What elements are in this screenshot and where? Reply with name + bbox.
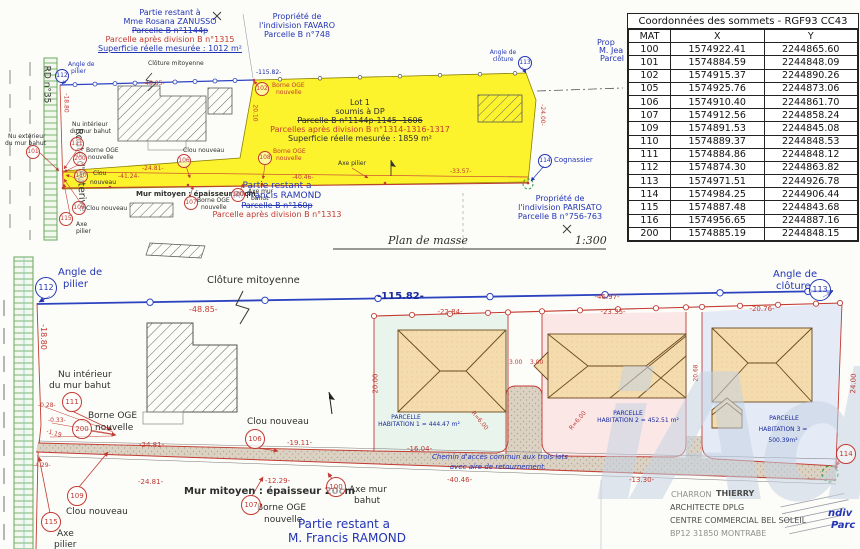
coord-cell: 110 xyxy=(629,135,671,148)
coord-cell: 1574912.56 xyxy=(671,109,765,122)
road-strip-bottom xyxy=(14,257,33,549)
table-row: 1061574910.402244861.70 xyxy=(629,95,858,108)
coord-cell: 109 xyxy=(629,122,671,135)
survey-plan-page: iAd Partie restant àMme Rosana ZANUSSOPa… xyxy=(0,0,860,549)
coord-cell: 2244848.15 xyxy=(764,227,858,240)
coord-cell: 116 xyxy=(629,214,671,227)
table-row: 1141574984.252244906.44 xyxy=(629,188,858,201)
coord-cell: 2244926.78 xyxy=(764,175,858,188)
coord-cell: 2244843.68 xyxy=(764,201,858,214)
coord-cell: 2244848.09 xyxy=(764,56,858,69)
coord-cell: 111 xyxy=(629,148,671,161)
coordinates-table: Coordonnées des sommets - RGF93 CC43 MAT… xyxy=(627,13,859,242)
table-title: Coordonnées des sommets - RGF93 CC43 xyxy=(628,14,858,29)
building-hatched xyxy=(478,95,522,122)
coord-cell: 105 xyxy=(629,82,671,95)
coord-cell: 2244845.08 xyxy=(764,122,858,135)
building-hatched xyxy=(208,88,232,114)
coord-cell: 1574956.65 xyxy=(671,214,765,227)
table-row: 1121574874.302244863.82 xyxy=(629,161,858,174)
coord-cell: 115 xyxy=(629,201,671,214)
stamp-icon xyxy=(781,493,853,535)
coord-cell: 1574910.40 xyxy=(671,95,765,108)
coord-cell: 1574885.19 xyxy=(671,227,765,240)
col-header-x: X xyxy=(671,30,765,43)
coord-cell: 113 xyxy=(629,175,671,188)
table-row: 1001574922.412244865.60 xyxy=(629,43,858,56)
coord-cell: 106 xyxy=(629,95,671,108)
col-header-mat: MAT xyxy=(629,30,671,43)
coord-cell: 2244848.53 xyxy=(764,135,858,148)
table-row: 1071574912.562244858.24 xyxy=(629,109,858,122)
bottom-plan-geometry xyxy=(4,257,853,549)
table-row: 1021574915.372244890.26 xyxy=(629,69,858,82)
coord-cell: 200 xyxy=(629,227,671,240)
table-header-row: MAT X Y xyxy=(629,30,858,43)
survey-cross-icon xyxy=(563,225,571,233)
coord-cell: 1574884.86 xyxy=(671,148,765,161)
table-row: 1111574884.862244848.12 xyxy=(629,148,858,161)
table-row: 1151574887.482244843.68 xyxy=(629,201,858,214)
survey-cross-icon xyxy=(213,12,221,20)
house-1 xyxy=(398,330,506,412)
building-hatched xyxy=(147,323,237,412)
coord-cell: 2244861.70 xyxy=(764,95,858,108)
coord-cell: 107 xyxy=(629,109,671,122)
coord-cell: 102 xyxy=(629,69,671,82)
coord-cell: 2244848.12 xyxy=(764,148,858,161)
coord-cell: 2244873.06 xyxy=(764,82,858,95)
table-row: 1091574891.532244845.08 xyxy=(629,122,858,135)
coord-cell: 114 xyxy=(629,188,671,201)
building-hatched xyxy=(118,86,206,141)
table-row: 1161574956.652244887.16 xyxy=(629,214,858,227)
coord-cell: 101 xyxy=(629,56,671,69)
table-row: 1051574925.762244873.06 xyxy=(629,82,858,95)
top-plan-geometry xyxy=(10,12,623,258)
coord-cell: 2244906.44 xyxy=(764,188,858,201)
coord-cell: 2244865.60 xyxy=(764,43,858,56)
col-header-y: Y xyxy=(764,30,858,43)
coord-cell: 2244890.26 xyxy=(764,69,858,82)
table-row: 1101574889.372244848.53 xyxy=(629,135,858,148)
coord-cell: 1574887.48 xyxy=(671,201,765,214)
coord-cell: 1574922.41 xyxy=(671,43,765,56)
table-row: 1131574971.512244926.78 xyxy=(629,175,858,188)
coord-cell: 1574889.37 xyxy=(671,135,765,148)
table-row: 1011574884.592244848.09 xyxy=(629,56,858,69)
coord-cell: 1574925.76 xyxy=(671,82,765,95)
north-arrow-icon xyxy=(329,392,335,400)
coord-cell: 100 xyxy=(629,43,671,56)
coord-cell: 1574915.37 xyxy=(671,69,765,82)
coord-cell: 1574984.25 xyxy=(671,188,765,201)
coord-cell: 2244863.82 xyxy=(764,161,858,174)
coord-cell: 2244887.16 xyxy=(764,214,858,227)
coord-cell: 112 xyxy=(629,161,671,174)
road-strip-top xyxy=(44,58,57,240)
coord-cell: 1574891.53 xyxy=(671,122,765,135)
coord-cell: 1574874.30 xyxy=(671,161,765,174)
table-row: 2001574885.192244848.15 xyxy=(629,227,858,240)
house-2 xyxy=(534,334,686,398)
coord-cell: 1574971.51 xyxy=(671,175,765,188)
coord-cell: 1574884.59 xyxy=(671,56,765,69)
coord-cell: 2244858.24 xyxy=(764,109,858,122)
